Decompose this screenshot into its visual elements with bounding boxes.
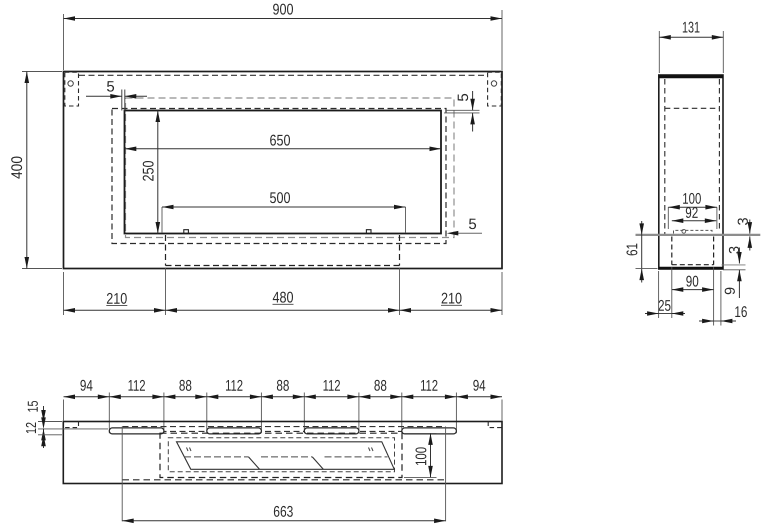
svg-text:9: 9 bbox=[723, 287, 739, 295]
svg-text:250: 250 bbox=[140, 160, 157, 181]
svg-text:3: 3 bbox=[727, 246, 743, 254]
svg-text:131: 131 bbox=[682, 19, 700, 36]
svg-text:900: 900 bbox=[272, 1, 293, 18]
svg-text:100: 100 bbox=[413, 447, 430, 466]
svg-text:5: 5 bbox=[106, 78, 114, 95]
svg-text:88: 88 bbox=[374, 378, 387, 395]
svg-text:15: 15 bbox=[26, 400, 42, 412]
svg-text:500: 500 bbox=[269, 190, 290, 207]
svg-text:400: 400 bbox=[9, 156, 26, 179]
svg-text:112: 112 bbox=[225, 378, 243, 395]
svg-text:92: 92 bbox=[685, 205, 698, 222]
svg-text:12: 12 bbox=[24, 422, 40, 434]
svg-text:3: 3 bbox=[736, 217, 752, 225]
svg-text:61: 61 bbox=[624, 243, 641, 256]
svg-text:5: 5 bbox=[455, 93, 472, 101]
svg-text:94: 94 bbox=[80, 378, 93, 395]
svg-text:650: 650 bbox=[269, 132, 290, 149]
svg-text:663: 663 bbox=[273, 504, 293, 521]
svg-text:112: 112 bbox=[323, 378, 341, 395]
svg-text:112: 112 bbox=[128, 378, 146, 395]
svg-text:88: 88 bbox=[179, 378, 192, 395]
svg-text:88: 88 bbox=[276, 378, 289, 395]
svg-text:94: 94 bbox=[473, 378, 486, 395]
svg-text:112: 112 bbox=[420, 378, 438, 395]
svg-text:25: 25 bbox=[658, 298, 671, 315]
svg-text:16: 16 bbox=[734, 304, 747, 321]
svg-text:90: 90 bbox=[686, 273, 699, 290]
svg-text:5: 5 bbox=[468, 216, 476, 233]
